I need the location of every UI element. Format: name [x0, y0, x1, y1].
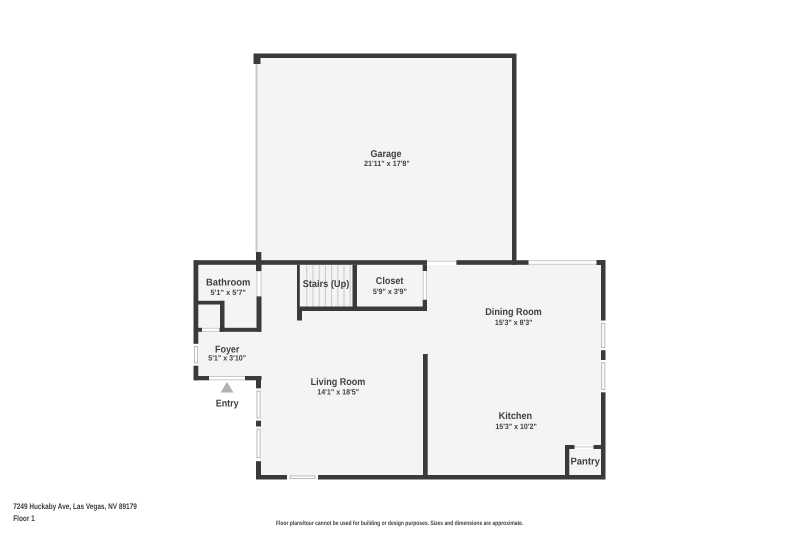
svg-text:Dining Room: Dining Room [485, 307, 542, 318]
svg-text:14'1" x 18'5": 14'1" x 18'5" [317, 388, 359, 397]
svg-text:15'3" x 8'3": 15'3" x 8'3" [495, 318, 533, 327]
svg-text:Closet: Closet [376, 276, 404, 287]
svg-text:5'9" x 3'9": 5'9" x 3'9" [373, 287, 407, 296]
svg-text:5'1" x 5'7": 5'1" x 5'7" [211, 288, 247, 297]
svg-text:21'11" x 17'8": 21'11" x 17'8" [364, 159, 410, 168]
svg-text:Floor 1: Floor 1 [13, 514, 35, 523]
svg-text:Kitchen: Kitchen [499, 411, 533, 422]
svg-text:15'3" x 10'2": 15'3" x 10'2" [495, 422, 537, 431]
svg-text:Bathroom: Bathroom [206, 278, 251, 289]
svg-text:Entry: Entry [216, 399, 239, 410]
svg-text:Living Room: Living Room [311, 377, 366, 388]
svg-text:5'1" x 3'10": 5'1" x 3'10" [208, 354, 246, 363]
svg-text:Stairs (Up): Stairs (Up) [303, 279, 350, 290]
svg-text:Floor plans/tour cannot be use: Floor plans/tour cannot be used for buil… [276, 520, 524, 527]
svg-text:Pantry: Pantry [571, 456, 601, 467]
svg-text:7249 Huckaby Ave, Las Vegas, N: 7249 Huckaby Ave, Las Vegas, NV 89179 [13, 502, 137, 511]
